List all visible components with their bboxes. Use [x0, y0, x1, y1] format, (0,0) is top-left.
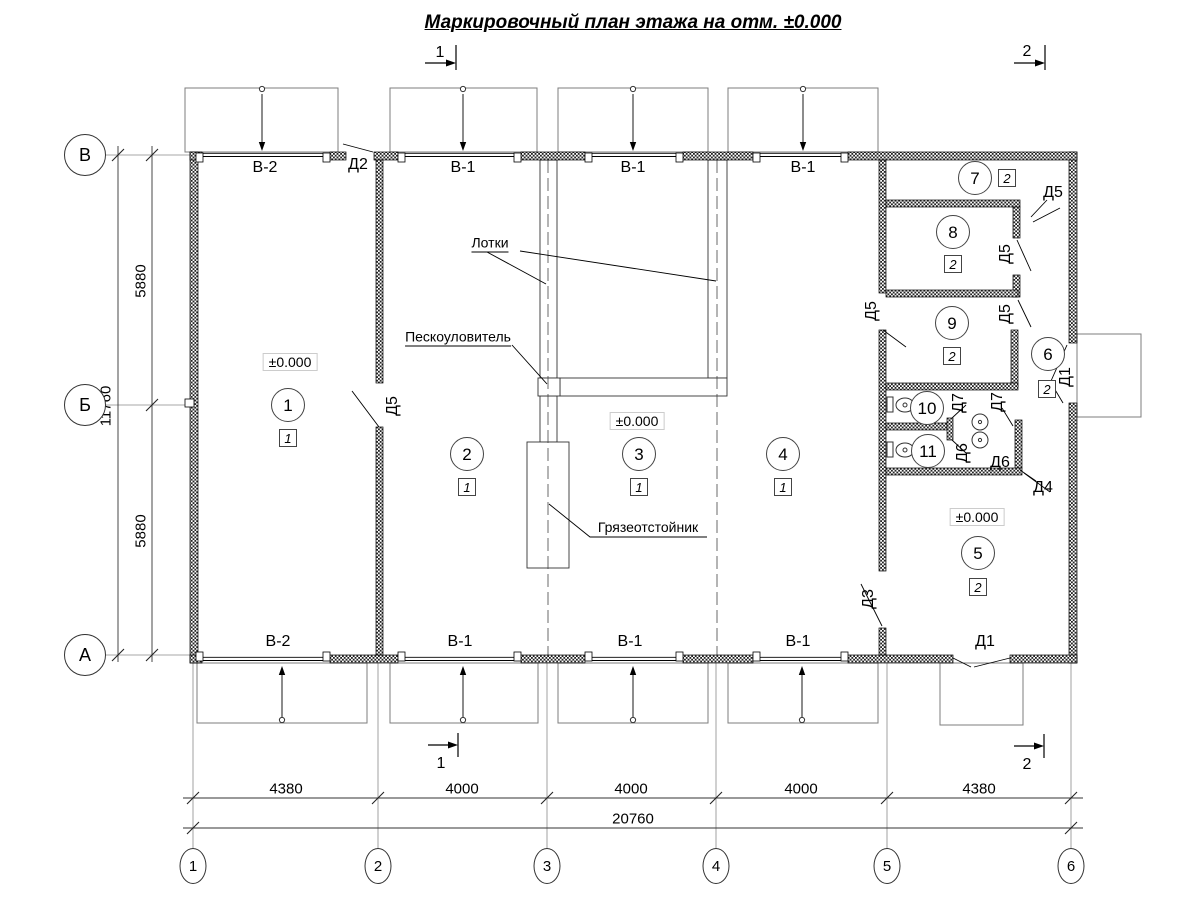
room-2-number: 2: [450, 437, 484, 471]
room-9-number: 9: [935, 306, 969, 340]
axis-V: В: [64, 134, 106, 176]
door-label-d7-2: Д7: [990, 392, 1006, 412]
axis-B: Б: [64, 384, 106, 426]
axis-2: 2: [365, 848, 392, 884]
room-5-number: 5: [961, 536, 995, 570]
annotation-trays: Лотки: [471, 236, 508, 253]
annotation-sand-trap: Пескоуловитель: [405, 330, 511, 347]
door-label-d5-axis2: Д5: [385, 396, 401, 416]
room-10-number: 10: [910, 391, 944, 425]
dim-20760: 20760: [612, 812, 654, 827]
dim-4000-2: 4000: [614, 782, 647, 797]
dim-5880-bottom: 5880: [134, 514, 149, 547]
room-5-category: 2: [969, 578, 987, 596]
axis-4: 4: [703, 848, 730, 884]
door-label-d5-room8: Д5: [998, 244, 1014, 264]
gate-label-v1-top-3: В-1: [791, 160, 816, 176]
gate-label-v2-bottom: В-2: [266, 634, 291, 650]
dim-4000-3: 4000: [784, 782, 817, 797]
section-mark-1-bottom: 1: [437, 756, 446, 772]
elevation-room5: ±0.000: [950, 508, 1005, 526]
room-8-number: 8: [936, 215, 970, 249]
gate-label-v1-bottom-2: В-1: [618, 634, 643, 650]
section-mark-2-top: 2: [1023, 44, 1032, 60]
door-label-d4: Д4: [1033, 480, 1053, 496]
dim-4000-1: 4000: [445, 782, 478, 797]
axis-5: 5: [874, 848, 901, 884]
door-label-d5-room7: Д5: [1043, 185, 1063, 201]
room-2-category: 1: [458, 478, 476, 496]
room-1-number: 1: [271, 388, 305, 422]
elevation-room1: ±0.000: [263, 353, 318, 371]
gate-label-v1-bottom-1: В-1: [448, 634, 473, 650]
drawing-title: Маркировочный план этажа на отм. ±0.000: [425, 12, 842, 34]
axis-6: 6: [1058, 848, 1085, 884]
door-label-d1-right: Д1: [1058, 367, 1074, 387]
door-label-d3: Д3: [861, 589, 877, 609]
room-4-category: 1: [774, 478, 792, 496]
axis-grid-lines: [105, 155, 1071, 849]
drainage-trays: [527, 160, 727, 655]
room-3-category: 1: [630, 478, 648, 496]
axis-A: А: [64, 634, 106, 676]
floor-plan-canvas: Маркировочный план этажа на отм. ±0.000 …: [0, 0, 1200, 900]
room-6-category: 2: [1038, 380, 1056, 398]
dim-5880-top: 5880: [134, 264, 149, 297]
door-label-d6-1: Д6: [955, 443, 971, 463]
room-1-category: 1: [279, 429, 297, 447]
dimension-lines: [112, 146, 1083, 834]
drawing-geometry: [0, 0, 1200, 900]
door-label-d7-1: Д7: [951, 393, 967, 413]
room-7-number: 7: [958, 161, 992, 195]
gate-label-v1-bottom-3: В-1: [786, 634, 811, 650]
axis-1: 1: [180, 848, 207, 884]
room-7-category: 2: [998, 169, 1016, 187]
elevation-room3: ±0.000: [610, 412, 665, 430]
section-mark-2-bottom: 2: [1023, 757, 1032, 773]
room-4-number: 4: [766, 437, 800, 471]
gate-label-v2-top: В-2: [253, 160, 278, 176]
room-6-number: 6: [1031, 337, 1065, 371]
dim-4380-right: 4380: [962, 782, 995, 797]
gate-label-v1-top-1: В-1: [451, 160, 476, 176]
dim-4380-left: 4380: [269, 782, 302, 797]
door-label-d1-bottom: Д1: [975, 634, 995, 650]
annotation-mud-settler: Грязеотстойник: [598, 520, 698, 534]
room-11-number: 11: [911, 434, 945, 468]
section-mark-1-top: 1: [436, 45, 445, 61]
room-3-number: 3: [622, 437, 656, 471]
gate-label-v1-top-2: В-1: [621, 160, 646, 176]
axis-3: 3: [534, 848, 561, 884]
room-9-category: 2: [943, 347, 961, 365]
door-label-d5-room9-left: Д5: [864, 301, 880, 321]
door-label-d5-room9-right: Д5: [998, 304, 1014, 324]
door-label-d2-top: Д2: [348, 157, 368, 173]
door-label-d6-2: Д6: [990, 455, 1010, 471]
room-8-category: 2: [944, 255, 962, 273]
